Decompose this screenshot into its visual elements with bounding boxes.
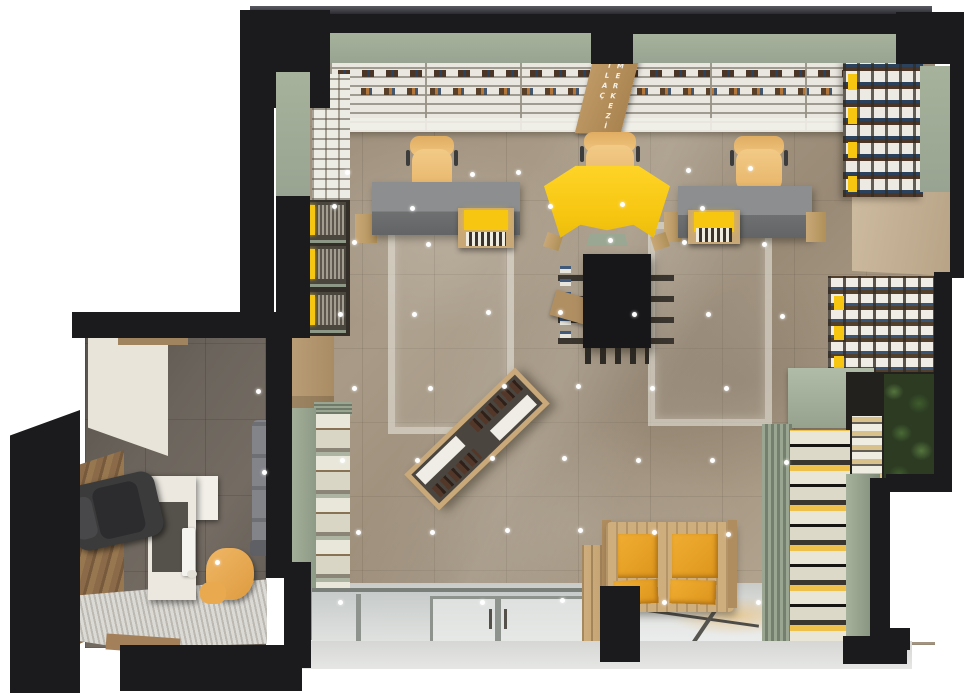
- west-wall-wood-cabinet: [292, 336, 334, 408]
- downlight-dot: [726, 532, 731, 537]
- downlight-dot: [636, 458, 641, 463]
- downlight-dot: [352, 240, 357, 245]
- downlight-dot: [560, 598, 565, 603]
- downlight-dot: [256, 389, 261, 394]
- register-ribs: [696, 228, 732, 242]
- downlight-dot: [608, 238, 613, 243]
- center-gondola-tower: [583, 254, 651, 348]
- downlight-dot: [756, 600, 761, 605]
- downlight-dot: [352, 386, 357, 391]
- downlight-dot: [470, 172, 475, 177]
- downlight-dot: [650, 386, 655, 391]
- east-shelf-products: [852, 416, 882, 478]
- floor-plan-render: İLAÇ MERKEZİ: [0, 0, 979, 693]
- downlight-dot: [426, 242, 431, 247]
- bench-back-cushion: [672, 534, 718, 578]
- downlight-dot: [784, 460, 789, 465]
- east-wall-mid: [934, 272, 952, 492]
- east-shelf-yellow-products: [834, 280, 844, 370]
- chair-armrest: [406, 150, 410, 166]
- downlight-dot: [652, 530, 657, 535]
- office-guest-chair-base: [200, 582, 226, 604]
- cash-register-left: [458, 208, 514, 248]
- entrance-pillar: [600, 586, 640, 662]
- office-wood-trim: [118, 338, 188, 345]
- downlight-dot: [762, 242, 767, 247]
- downlight-dot: [486, 310, 491, 315]
- executive-chair-seat: [91, 480, 148, 541]
- downlight-dot: [516, 170, 521, 175]
- downlight-dot: [578, 528, 583, 533]
- office-guest-chair: [206, 548, 254, 600]
- downlight-dot: [430, 530, 435, 535]
- gondola-fins-right: [648, 262, 674, 344]
- bench-back-cushion: [618, 534, 658, 578]
- downlight-dot: [332, 204, 337, 209]
- register-ribs: [466, 232, 506, 246]
- downlight-dot: [502, 384, 507, 389]
- entrance-door-right: [498, 596, 592, 644]
- office-west-wall: [10, 410, 80, 693]
- downlight-dot: [780, 314, 785, 319]
- downlight-dot: [662, 600, 667, 605]
- downlight-dot: [490, 456, 495, 461]
- storefront-mullion: [356, 594, 361, 642]
- downlight-dot: [700, 206, 705, 211]
- bench-seat-cushion: [670, 579, 717, 605]
- cash-register-right: [688, 210, 740, 244]
- register-yellow-top: [464, 210, 508, 230]
- downlight-dot: [262, 470, 267, 475]
- downlight-dot: [706, 312, 711, 317]
- downlight-dot: [345, 170, 350, 175]
- office-north-wall: [72, 312, 292, 338]
- east-shelf-yellow-products: [848, 64, 857, 192]
- east-wall-wood-panel: [852, 190, 950, 276]
- product-ribs: [318, 205, 344, 235]
- east-shelf-sage-ribs: [762, 424, 792, 648]
- west-wall: [240, 100, 274, 322]
- downlight-dot: [548, 204, 553, 209]
- door-handle: [504, 609, 507, 629]
- office-south-wall: [120, 645, 302, 691]
- downlight-dot: [338, 312, 343, 317]
- east-wall-upper: [950, 12, 964, 278]
- downlight-dot: [412, 312, 417, 317]
- north-wall-sage-cap: [633, 34, 901, 63]
- product-ribs: [318, 295, 344, 325]
- downlight-dot: [356, 530, 361, 535]
- east-wall-sage-cap: [920, 66, 952, 192]
- downlight-dot: [558, 310, 563, 315]
- entrance-door-left: [430, 596, 498, 644]
- chair-armrest: [580, 146, 584, 162]
- downlight-dot: [480, 600, 485, 605]
- southeast-wall-stub: [888, 628, 910, 650]
- office-monitor-stand: [187, 570, 197, 578]
- downlight-dot: [338, 600, 343, 605]
- east-wall-low-shelf: [790, 430, 850, 644]
- office-monitor: [182, 528, 195, 576]
- east-wall-lower: [870, 478, 890, 650]
- downlight-dot: [410, 206, 415, 211]
- downlight-dot: [576, 384, 581, 389]
- southwest-pillar: [284, 562, 311, 668]
- east-wall-step: [886, 474, 948, 492]
- downlight-dot: [710, 458, 715, 463]
- door-handle: [489, 609, 492, 629]
- west-wall-sage-shelf: [314, 414, 350, 596]
- outside-area: [888, 492, 979, 642]
- office-shared-wall: [266, 312, 292, 578]
- downlight-dot: [748, 166, 753, 171]
- chair-armrest: [636, 146, 640, 162]
- downlight-dot: [632, 312, 637, 317]
- downlight-dot: [215, 560, 220, 565]
- task-chair-right: [734, 136, 784, 192]
- downlight-dot: [724, 386, 729, 391]
- downlight-dot: [428, 386, 433, 391]
- downlight-dot: [415, 458, 420, 463]
- chair-armrest: [454, 150, 458, 166]
- downlight-dot: [682, 240, 687, 245]
- downlight-dot: [340, 458, 345, 463]
- north-wall-pillar: [591, 30, 633, 64]
- reception-sage-lip: [586, 234, 628, 246]
- chair-armrest: [784, 150, 788, 166]
- chair-armrest: [730, 150, 734, 166]
- downlight-dot: [505, 528, 510, 533]
- west-wall-sage-cap: [276, 72, 310, 198]
- desk-wood-end: [806, 212, 826, 242]
- product-ribs: [318, 249, 344, 279]
- downlight-dot: [562, 456, 567, 461]
- downlight-dot: [686, 168, 691, 173]
- downlight-dot: [620, 202, 625, 207]
- storefront-glazing: [312, 588, 602, 642]
